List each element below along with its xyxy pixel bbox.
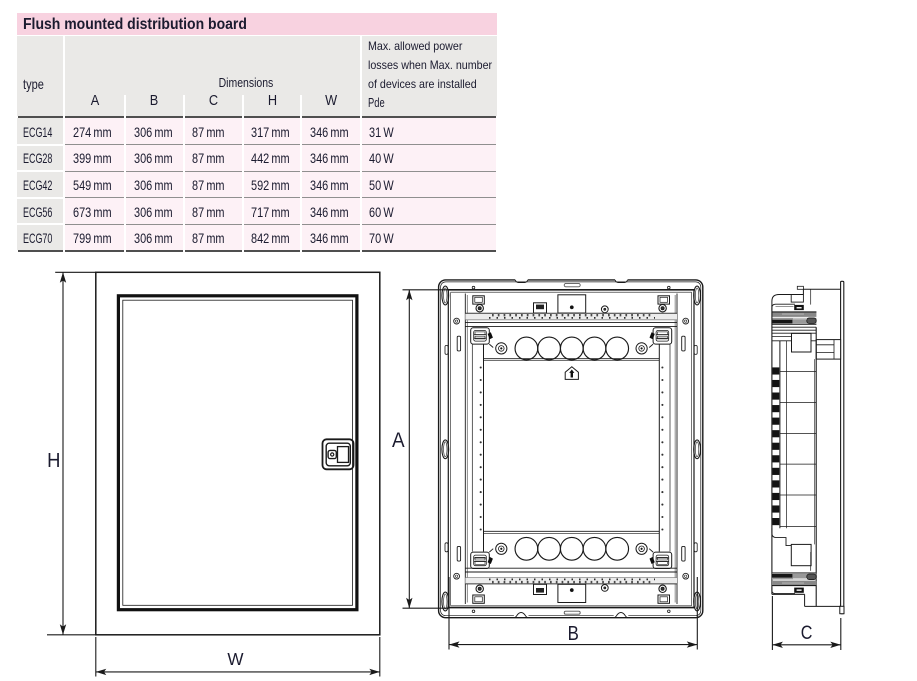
svg-text:W: W: [227, 649, 244, 670]
svg-text:H: H: [47, 450, 60, 472]
svg-text:C: C: [801, 622, 813, 644]
svg-text:B: B: [568, 621, 579, 644]
svg-text:A: A: [392, 429, 405, 452]
